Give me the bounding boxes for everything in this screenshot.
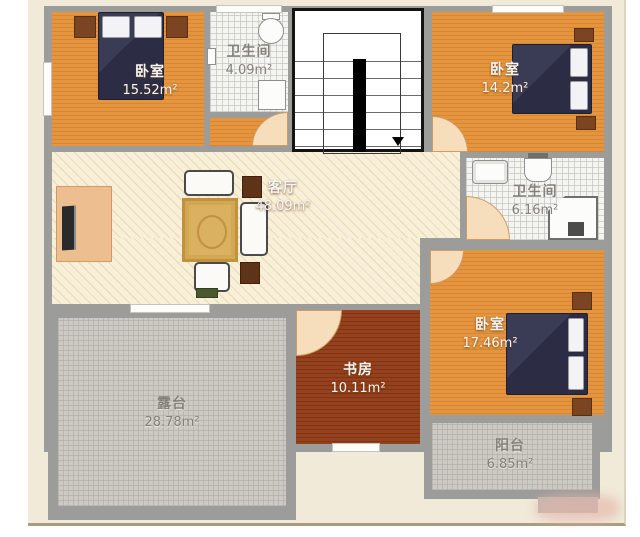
window-icon	[332, 443, 380, 452]
side-table-icon	[242, 176, 262, 198]
plant-icon	[196, 288, 218, 298]
terrace-door-window-icon	[130, 304, 210, 313]
room-balcony	[432, 423, 592, 490]
stair-direction-arrow-icon	[392, 137, 404, 146]
nightstand-icon	[572, 398, 592, 416]
pillow-icon	[134, 16, 162, 38]
pillow-icon	[102, 16, 130, 38]
nightstand-icon	[572, 292, 592, 310]
sofa-icon	[184, 170, 234, 196]
floor-plan: 卧室 15.52m² 卫生间 4.09m² 卧室 14.2m² 客厅 48.09…	[0, 0, 640, 537]
pillow-icon	[568, 356, 584, 390]
room-terrace	[58, 318, 286, 506]
pillow-icon	[570, 81, 588, 110]
side-table-icon	[240, 262, 260, 284]
window-icon	[43, 62, 52, 116]
nightstand-icon	[576, 116, 596, 130]
toilet-icon	[524, 158, 552, 182]
toilet-icon	[258, 18, 284, 44]
window-icon	[216, 5, 282, 13]
rug-icon	[182, 198, 238, 262]
pillow-icon	[570, 48, 588, 77]
watermark-blur	[535, 494, 620, 522]
pillow-icon	[568, 318, 584, 352]
sink-icon	[472, 160, 508, 184]
tv-icon	[62, 206, 76, 251]
stair-center-wall	[353, 59, 366, 152]
nightstand-icon	[574, 28, 594, 42]
sofa-icon	[240, 202, 268, 256]
shower-drain-icon	[568, 222, 584, 236]
sink-icon	[207, 48, 216, 65]
nightstand-icon	[74, 16, 96, 38]
shower-icon	[258, 80, 286, 110]
nightstand-icon	[166, 16, 188, 38]
staircase-icon	[292, 8, 424, 152]
window-icon	[492, 5, 564, 13]
